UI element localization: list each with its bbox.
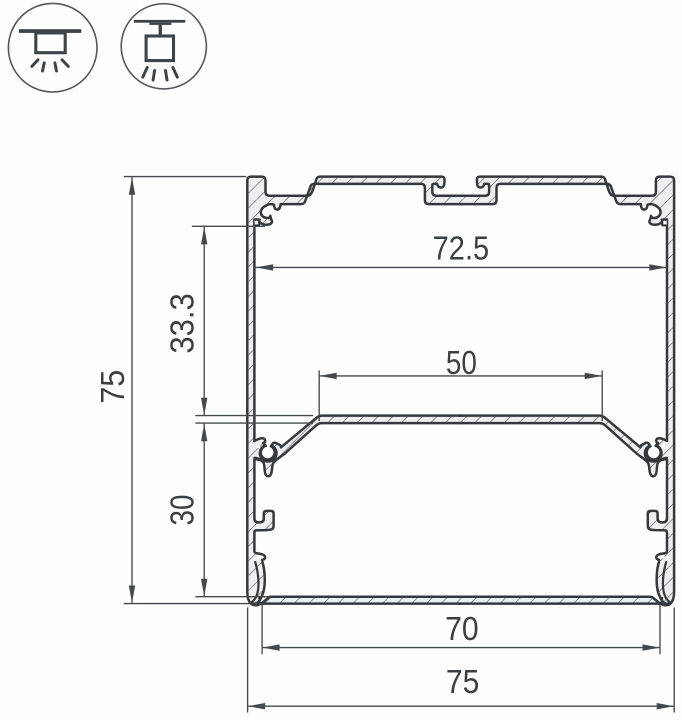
svg-text:72.5: 72.5: [433, 230, 490, 267]
svg-text:33.3: 33.3: [165, 293, 202, 354]
svg-text:50: 50: [446, 345, 477, 382]
svg-text:70: 70: [445, 611, 479, 648]
svg-text:75: 75: [446, 664, 480, 701]
svg-text:75: 75: [95, 370, 132, 404]
svg-text:30: 30: [165, 495, 202, 526]
